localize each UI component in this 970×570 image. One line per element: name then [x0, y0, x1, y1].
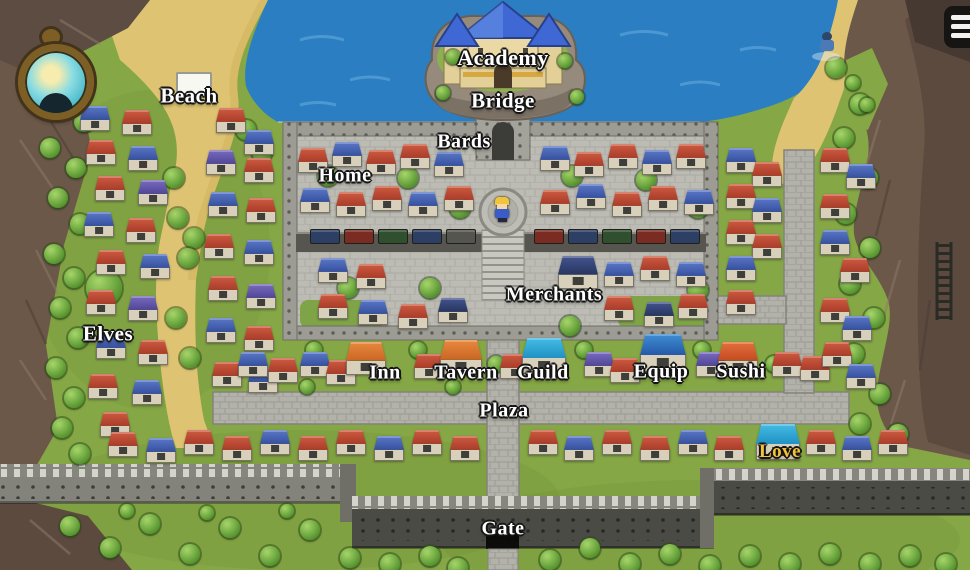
market-stall — [602, 229, 632, 244]
house — [564, 436, 594, 460]
tree — [436, 86, 450, 100]
house — [244, 130, 274, 154]
house — [644, 302, 674, 326]
house — [846, 164, 876, 188]
tree — [780, 554, 800, 570]
house — [268, 358, 298, 382]
house — [678, 430, 708, 454]
map-label-love[interactable]: Love — [759, 441, 801, 463]
house — [132, 380, 162, 404]
market-stall — [636, 229, 666, 244]
house — [138, 180, 168, 204]
tree — [260, 546, 280, 566]
house — [300, 188, 330, 212]
market-stall — [670, 229, 700, 244]
map-label-beach[interactable]: Beach — [160, 84, 217, 109]
house — [878, 430, 908, 454]
house — [642, 150, 672, 174]
house — [356, 264, 386, 288]
market-stall — [310, 229, 340, 244]
tree — [178, 248, 198, 268]
player-marker — [492, 197, 512, 223]
market-stall — [344, 229, 374, 244]
tree — [340, 548, 360, 568]
tree — [420, 546, 440, 566]
house — [678, 294, 708, 318]
house — [128, 146, 158, 170]
tree — [166, 308, 186, 328]
house — [206, 318, 236, 342]
tree — [540, 550, 560, 570]
house — [612, 192, 642, 216]
swimmer-npc — [812, 32, 842, 64]
tree — [140, 514, 160, 534]
tree — [700, 556, 720, 570]
house — [318, 294, 348, 318]
tree — [846, 76, 860, 90]
house — [412, 430, 442, 454]
map-label-merchants[interactable]: Merchants — [506, 284, 602, 307]
tree — [860, 98, 874, 112]
tree — [200, 506, 214, 520]
house — [86, 290, 116, 314]
house — [332, 142, 362, 166]
map-label-equip[interactable]: Equip — [634, 361, 689, 384]
tree — [620, 554, 640, 570]
tree — [380, 554, 400, 570]
house — [752, 198, 782, 222]
tree — [860, 554, 880, 570]
tree — [180, 348, 200, 368]
terrain — [0, 0, 970, 570]
tree — [100, 538, 120, 558]
house — [752, 234, 782, 258]
house — [846, 364, 876, 388]
market-stall — [568, 229, 598, 244]
player-legs — [498, 218, 507, 222]
map-label-academy[interactable]: Academy — [457, 45, 548, 71]
market-stall — [446, 229, 476, 244]
tree — [850, 414, 870, 434]
house — [640, 256, 670, 280]
house — [260, 430, 290, 454]
house — [140, 254, 170, 278]
house — [146, 438, 176, 462]
tree — [44, 244, 64, 264]
hamburger-bar — [951, 24, 970, 29]
house — [88, 374, 118, 398]
tree — [280, 504, 294, 518]
house — [640, 436, 670, 460]
house — [714, 436, 744, 460]
tree — [66, 158, 86, 178]
house — [216, 108, 246, 132]
swimmer-torso — [820, 40, 834, 51]
tree — [40, 138, 60, 158]
day-night-clock-icon[interactable] — [18, 44, 94, 120]
tree — [184, 228, 204, 248]
map-label-gate[interactable]: Gate — [481, 518, 524, 541]
tree — [936, 554, 956, 570]
house — [752, 162, 782, 186]
house — [648, 186, 678, 210]
house — [95, 176, 125, 200]
house — [434, 152, 464, 176]
game-town-map: AcademyBridgeBeachBardsHomeMerchantsElve… — [0, 0, 970, 570]
tree — [860, 238, 880, 258]
house — [608, 144, 638, 168]
map-label-sushi[interactable]: Sushi — [716, 361, 765, 384]
house — [604, 262, 634, 286]
house — [438, 298, 468, 322]
house — [336, 430, 366, 454]
tree — [300, 380, 314, 394]
tree — [50, 298, 70, 318]
map-label-guild[interactable]: Guild — [517, 362, 568, 385]
house — [80, 106, 110, 130]
house — [820, 194, 850, 218]
house — [244, 240, 274, 264]
map-label-plaza[interactable]: Plaza — [479, 400, 528, 423]
house — [246, 198, 276, 222]
water-ripple — [812, 52, 840, 61]
house — [676, 144, 706, 168]
tree — [300, 520, 320, 540]
market-stall — [412, 229, 442, 244]
house — [820, 230, 850, 254]
house — [806, 430, 836, 454]
tree — [420, 278, 440, 298]
house — [358, 300, 388, 324]
house — [842, 436, 872, 460]
tree — [180, 544, 200, 564]
house — [840, 258, 870, 282]
tree — [660, 544, 680, 564]
house — [602, 430, 632, 454]
house — [96, 250, 126, 274]
tree — [120, 504, 134, 518]
house — [372, 186, 402, 210]
house — [408, 192, 438, 216]
house — [528, 430, 558, 454]
house — [604, 296, 634, 320]
hamburger-bar — [951, 33, 970, 38]
tree — [64, 388, 84, 408]
house — [822, 342, 852, 366]
tree — [52, 418, 72, 438]
market-stall — [534, 229, 564, 244]
house — [336, 192, 366, 216]
map-label-bridge[interactable]: Bridge — [471, 89, 535, 114]
house — [122, 110, 152, 134]
house — [128, 296, 158, 320]
player-body — [495, 209, 509, 218]
house — [86, 140, 116, 164]
house — [576, 184, 606, 208]
map-label-inn[interactable]: Inn — [369, 362, 401, 385]
house — [772, 352, 802, 376]
house — [684, 190, 714, 214]
house — [222, 436, 252, 460]
house — [138, 340, 168, 364]
tree — [570, 90, 584, 104]
tree — [580, 538, 600, 558]
house — [842, 316, 872, 340]
house — [318, 258, 348, 282]
tree — [558, 54, 572, 68]
house — [726, 256, 756, 280]
tree — [820, 544, 840, 564]
tree — [60, 516, 80, 536]
house — [400, 144, 430, 168]
house — [574, 152, 604, 176]
hamburger-bar — [951, 15, 970, 20]
house — [444, 186, 474, 210]
tree — [220, 518, 240, 538]
house — [726, 290, 756, 314]
tree — [740, 546, 760, 566]
map-label-tavern[interactable]: Tavern — [434, 362, 497, 385]
tree — [834, 128, 854, 148]
house — [184, 430, 214, 454]
house — [450, 436, 480, 460]
house — [108, 432, 138, 456]
house — [244, 326, 274, 350]
map-label-home[interactable]: Home — [318, 165, 371, 188]
house — [374, 436, 404, 460]
house — [208, 192, 238, 216]
house — [540, 146, 570, 170]
tree — [900, 546, 920, 566]
house — [246, 284, 276, 308]
clock-night-segment — [39, 93, 73, 120]
house — [204, 234, 234, 258]
house — [238, 352, 268, 376]
house — [206, 150, 236, 174]
tree — [70, 444, 90, 464]
house — [298, 436, 328, 460]
tree — [398, 168, 418, 188]
house — [84, 212, 114, 236]
house — [126, 218, 156, 242]
hamburger-menu-button[interactable] — [944, 6, 970, 48]
house — [540, 190, 570, 214]
tree — [46, 358, 66, 378]
map-label-elves[interactable]: Elves — [83, 322, 133, 347]
tree — [64, 268, 84, 288]
house — [244, 158, 274, 182]
house — [676, 262, 706, 286]
market-stall — [378, 229, 408, 244]
house — [208, 276, 238, 300]
house — [398, 304, 428, 328]
tree — [168, 208, 188, 228]
tree — [560, 316, 580, 336]
tree — [48, 188, 68, 208]
map-label-bards[interactable]: Bards — [437, 131, 491, 154]
